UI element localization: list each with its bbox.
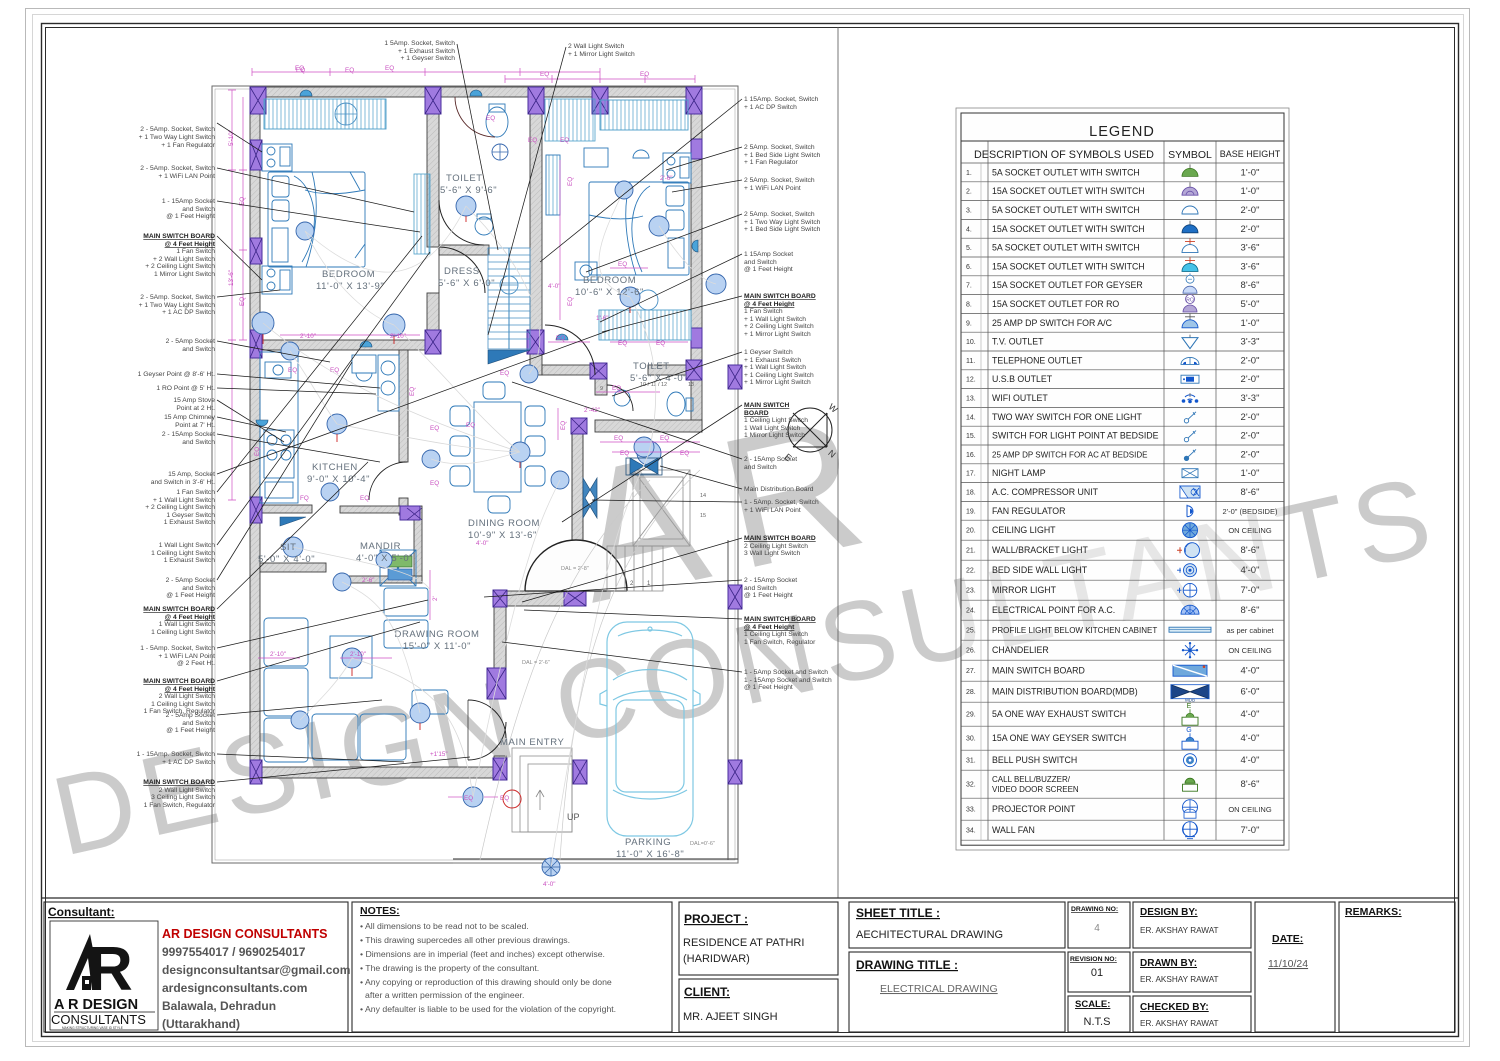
svg-text:1 Ceiling Light Switch: 1 Ceiling Light Switch	[744, 631, 808, 638]
svg-text:+ 1 Mirror Light Switch: + 1 Mirror Light Switch	[568, 51, 635, 58]
svg-text:24.: 24.	[966, 608, 976, 615]
svg-text:2 - 5Amp Socket: 2 - 5Amp Socket	[166, 577, 216, 584]
svg-text:BASE HEIGHT: BASE HEIGHT	[1220, 149, 1281, 159]
svg-text:Main Distribution Board: Main Distribution Board	[744, 486, 814, 493]
svg-text:25 AMP DP SWITCH FOR A/C: 25 AMP DP SWITCH FOR A/C	[992, 318, 1113, 328]
svg-text:+ 1 WiFi LAN Point: + 1 WiFi LAN Point	[744, 185, 801, 192]
svg-text:SCALE:: SCALE:	[1075, 999, 1110, 1010]
svg-text:3'-6": 3'-6"	[1241, 243, 1260, 254]
svg-text:@ 1 Feet Height: @ 1 Feet Height	[744, 266, 793, 273]
svg-text:CALL BELL/BUZZER/: CALL BELL/BUZZER/	[992, 775, 1071, 784]
svg-text:4'-0": 4'-0"	[1241, 709, 1260, 720]
svg-text:EQ: EQ	[486, 115, 495, 122]
svg-text:+ 1 WiFi LAN Point: + 1 WiFi LAN Point	[744, 507, 801, 514]
svg-text:4'-0": 4'-0"	[543, 881, 556, 888]
svg-text:3 Ceiling Light Switch: 3 Ceiling Light Switch	[151, 794, 215, 801]
svg-text:2 Ceiling Light Switch: 2 Ceiling Light Switch	[744, 543, 808, 550]
svg-text:and Switch: and Switch	[182, 206, 215, 213]
svg-text:WIFI OUTLET: WIFI OUTLET	[992, 393, 1048, 403]
svg-text:EQ: EQ	[464, 795, 473, 802]
svg-text:32.: 32.	[966, 782, 976, 789]
svg-text:CHANDELIER: CHANDELIER	[992, 645, 1049, 655]
svg-text:and Switch: and Switch	[182, 585, 215, 592]
svg-text:EQ: EQ	[680, 450, 689, 457]
svg-text:1 Geyser Switch: 1 Geyser Switch	[166, 512, 215, 519]
svg-text:15A SOCKET OUTLET WITH SWITCH: 15A SOCKET OUTLET WITH SWITCH	[992, 186, 1145, 196]
svg-text:+ 1 Fan Regulator: + 1 Fan Regulator	[744, 159, 798, 166]
svg-text:EQ: EQ	[620, 450, 629, 457]
svg-text:15A SOCKET OUTLET FOR GEYSER: 15A SOCKET OUTLET FOR GEYSER	[992, 280, 1143, 290]
svg-text:1 Ceiling Light Switch: 1 Ceiling Light Switch	[744, 417, 808, 424]
svg-text:TOILET: TOILET	[446, 173, 483, 184]
svg-text:EQ: EQ	[528, 137, 537, 144]
svg-text:+1'15": +1'15"	[430, 751, 448, 758]
svg-text:DESIGN BY:: DESIGN BY:	[1140, 907, 1198, 918]
svg-text:15A ONE WAY GEYSER SWITCH: 15A ONE WAY GEYSER SWITCH	[992, 733, 1126, 743]
svg-text:2 - 5Amp. Socket, Switch: 2 - 5Amp. Socket, Switch	[140, 165, 215, 172]
svg-text:and Switch in 3'-6' Ht.: and Switch in 3'-6' Ht.	[151, 479, 215, 486]
svg-text:EQ: EQ	[567, 177, 574, 186]
svg-text:12.: 12.	[966, 377, 976, 384]
svg-text:DINING ROOM: DINING ROOM	[468, 518, 540, 529]
svg-text:1 15Amp. Socket, Switch: 1 15Amp. Socket, Switch	[744, 96, 819, 103]
svg-text:2 - 5Amp Socket: 2 - 5Amp Socket	[166, 712, 216, 719]
svg-text:MAIN DISTRIBUTION BOARD(MDB): MAIN DISTRIBUTION BOARD(MDB)	[992, 687, 1138, 697]
svg-text:@ 1 Feet Height: @ 1 Feet Height	[744, 592, 793, 599]
svg-text:1'-0": 1'-0"	[1241, 167, 1260, 178]
svg-text:3'-6": 3'-6"	[1241, 261, 1260, 272]
svg-text:11'-0" X 16'-8": 11'-0" X 16'-8"	[616, 849, 684, 860]
svg-text:1 Wall Light Switch: 1 Wall Light Switch	[159, 621, 216, 628]
svg-text:MAIN SWITCH BOARD: MAIN SWITCH BOARD	[143, 606, 215, 613]
svg-text:and Switch: and Switch	[182, 439, 215, 446]
svg-text:MAIN SWITCH BOARD: MAIN SWITCH BOARD	[143, 779, 215, 786]
svg-text:1 Mirror Light Switch: 1 Mirror Light Switch	[154, 271, 215, 278]
svg-text:5A SOCKET OUTLET WITH SWITCH: 5A SOCKET OUTLET WITH SWITCH	[992, 243, 1140, 253]
svg-text:A.C. COMPRESSOR UNIT: A.C. COMPRESSOR UNIT	[992, 487, 1099, 497]
svg-text:5A ONE WAY EXHAUST SWITCH: 5A ONE WAY EXHAUST SWITCH	[992, 709, 1126, 719]
svg-text:and Switch: and Switch	[182, 720, 215, 727]
svg-text:2': 2'	[432, 596, 439, 601]
svg-text:1 5Amp. Socket, Switch: 1 5Amp. Socket, Switch	[384, 40, 455, 47]
svg-text:DAL = 2'-8": DAL = 2'-8"	[561, 566, 589, 572]
svg-text:1 Wall Light Switch: 1 Wall Light Switch	[159, 542, 216, 549]
svg-text:CEILING LIGHT: CEILING LIGHT	[992, 525, 1056, 535]
svg-text:1 RO Point @ 5' Ht.: 1 RO Point @ 5' Ht.	[156, 385, 215, 392]
svg-text:EQ: EQ	[239, 297, 246, 306]
svg-text:2 5Amp. Socket, Switch: 2 5Amp. Socket, Switch	[744, 144, 815, 151]
svg-text:9.: 9.	[966, 320, 972, 327]
svg-text:6'-0": 6'-0"	[1241, 687, 1260, 698]
svg-text:EQ: EQ	[660, 435, 669, 442]
svg-text:NOTES:: NOTES:	[360, 905, 400, 917]
svg-text:EQ: EQ	[560, 137, 569, 144]
svg-text:2 Wall Light Switch: 2 Wall Light Switch	[159, 693, 216, 700]
svg-text:2'-0": 2'-0"	[1241, 449, 1260, 460]
svg-text:EQ: EQ	[640, 71, 649, 78]
svg-text:1 Fan Switch: 1 Fan Switch	[176, 489, 215, 496]
svg-text:26.: 26.	[966, 648, 976, 655]
svg-text:4'-0": 4'-0"	[476, 540, 489, 547]
svg-text:MANDIR: MANDIR	[360, 541, 401, 552]
svg-text:LEGEND: LEGEND	[1089, 124, 1155, 140]
svg-text:17.: 17.	[966, 471, 976, 478]
svg-text:+ 1 AC DP Switch: + 1 AC DP Switch	[162, 759, 215, 766]
svg-text:14: 14	[700, 493, 706, 499]
svg-text:SHEET TITLE :: SHEET TITLE :	[856, 906, 940, 920]
svg-text:MAIN SWITCH BOARD: MAIN SWITCH BOARD	[143, 678, 215, 685]
svg-text:8'-6": 8'-6"	[1241, 779, 1260, 790]
svg-text:EQ: EQ	[618, 261, 627, 268]
svg-text:WALL FAN: WALL FAN	[992, 825, 1035, 835]
svg-text:30.: 30.	[966, 736, 976, 743]
svg-text:+ 1 Fan Regulator: + 1 Fan Regulator	[161, 142, 215, 149]
svg-text:ER. AKSHAY RAWAT: ER. AKSHAY RAWAT	[1140, 1019, 1219, 1028]
svg-text:01: 01	[1091, 967, 1103, 979]
svg-text:2 5Amp. Socket, Switch: 2 5Amp. Socket, Switch	[744, 211, 815, 218]
svg-text:Point at 2 Ht.: Point at 2 Ht.	[176, 405, 215, 412]
svg-text:10.: 10.	[966, 339, 976, 346]
svg-text:13: 13	[688, 382, 694, 388]
svg-text:2 - 5Amp Socket: 2 - 5Amp Socket	[166, 338, 216, 345]
svg-text:AECHITECTURAL DRAWING: AECHITECTURAL DRAWING	[856, 929, 1003, 941]
svg-text:@ 4 Feet Height: @ 4 Feet Height	[165, 686, 216, 693]
svg-text:and Switch: and Switch	[744, 585, 777, 592]
svg-text:• Any copying or reproduction: • Any copying or reproduction of this dr…	[360, 977, 612, 987]
svg-text:4'-0": 4'-0"	[1241, 755, 1260, 766]
svg-text:ELECTRICAL DRAWING: ELECTRICAL DRAWING	[880, 983, 998, 995]
svg-text:1 Ceiling Light Switch: 1 Ceiling Light Switch	[151, 550, 215, 557]
svg-text:@ 1 Feet Height: @ 1 Feet Height	[744, 684, 793, 691]
svg-text:BOARD: BOARD	[744, 410, 769, 417]
svg-text:25.: 25.	[966, 628, 976, 635]
svg-text:15A SOCKET OUTLET FOR RO: 15A SOCKET OUTLET FOR RO	[992, 299, 1119, 309]
svg-text:1 Ceiling Light Switch: 1 Ceiling Light Switch	[151, 629, 215, 636]
svg-text:1'-0": 1'-0"	[1241, 468, 1260, 479]
svg-text:ER. AKSHAY RAWAT: ER. AKSHAY RAWAT	[1140, 975, 1219, 984]
svg-text:@ 1 Feet Height: @ 1 Feet Height	[166, 213, 215, 220]
svg-text:1 Fan Switch: 1 Fan Switch	[744, 308, 783, 315]
svg-text:3'-3": 3'-3"	[1241, 393, 1260, 404]
svg-text:15: 15	[700, 513, 706, 519]
svg-text:2 Wall Light Switch: 2 Wall Light Switch	[568, 43, 625, 50]
svg-text:+ 1 Mirror Light Switch: + 1 Mirror Light Switch	[744, 379, 811, 386]
svg-text:PROJECTOR POINT: PROJECTOR POINT	[992, 804, 1076, 814]
svg-text:DATE:: DATE:	[1272, 933, 1303, 945]
svg-text:15'-0" X 11'-0": 15'-0" X 11'-0"	[403, 641, 471, 652]
svg-text:and Switch: and Switch	[744, 464, 777, 471]
svg-text:9997554017 / 9690254017: 9997554017 / 9690254017	[162, 945, 306, 959]
svg-text:1 - 15Amp Socket: 1 - 15Amp Socket	[162, 198, 215, 205]
svg-text:• All dimensions to be read no: • All dimensions to be read not to be sc…	[360, 921, 529, 931]
svg-text:BELL PUSH SWITCH: BELL PUSH SWITCH	[992, 755, 1077, 765]
svg-text:8.: 8.	[966, 302, 972, 309]
svg-text:13'-6": 13'-6"	[228, 270, 235, 286]
svg-text:ON CEILING: ON CEILING	[1228, 526, 1272, 535]
svg-text:@ 4 Feet Height: @ 4 Feet Height	[744, 301, 795, 308]
svg-text:EQ: EQ	[656, 340, 665, 347]
svg-text:MAIN SWITCH BOARD: MAIN SWITCH BOARD	[992, 666, 1085, 676]
svg-text:REMARKS:: REMARKS:	[1345, 906, 1402, 918]
svg-text:ON CEILING: ON CEILING	[1228, 646, 1272, 655]
svg-text:MAIN ENTRY: MAIN ENTRY	[500, 737, 564, 748]
svg-text:5A SOCKET OUTLET WITH SWITCH: 5A SOCKET OUTLET WITH SWITCH	[992, 167, 1140, 177]
svg-text:1.: 1.	[966, 170, 972, 177]
svg-text:EQ: EQ	[556, 335, 565, 342]
svg-text:7'-0": 7'-0"	[1241, 585, 1260, 596]
svg-text:+ 1 Bed Side Light Switch: + 1 Bed Side Light Switch	[744, 152, 821, 159]
svg-text:8'-6": 8'-6"	[1241, 487, 1260, 498]
svg-text:• Dimensions are in imperial (: • Dimensions are in imperial (feet and i…	[360, 949, 605, 959]
svg-text:RESIDENCE AT PATHRI: RESIDENCE AT PATHRI	[683, 937, 804, 949]
svg-text:22.: 22.	[966, 568, 976, 575]
svg-text:28.: 28.	[966, 689, 976, 696]
svg-text:BED SIDE WALL LIGHT: BED SIDE WALL LIGHT	[992, 565, 1088, 575]
svg-text:3 Wall Light Switch: 3 Wall Light Switch	[744, 550, 801, 557]
svg-text:EQ: EQ	[614, 435, 623, 442]
svg-text:@ 4 Feet Height: @ 4 Feet Height	[165, 241, 216, 248]
svg-text:6.: 6.	[966, 264, 972, 271]
svg-text:(HARIDWAR): (HARIDWAR)	[683, 953, 750, 965]
svg-text:DESCRIPTION OF SYMBOLS USED: DESCRIPTION OF SYMBOLS USED	[974, 149, 1154, 161]
svg-text:Consultant:: Consultant:	[48, 905, 115, 919]
svg-text:+ 1 Wall Light Switch: + 1 Wall Light Switch	[744, 364, 806, 371]
svg-text:11.: 11.	[966, 358, 975, 365]
svg-text:@ 1 Feet Height: @ 1 Feet Height	[166, 592, 215, 599]
svg-text:3'-3": 3'-3"	[1241, 337, 1260, 348]
svg-text:@ 4 Feet Height: @ 4 Feet Height	[165, 614, 216, 621]
svg-text:18.: 18.	[966, 490, 976, 497]
svg-text:+ 1 Two Way Light Switch: + 1 Two Way Light Switch	[744, 219, 821, 226]
svg-text:• This drawing supercedes all: • This drawing supercedes all other prev…	[360, 935, 570, 945]
svg-text:4'-0": 4'-0"	[548, 283, 561, 290]
svg-text:7'-0": 7'-0"	[1241, 825, 1260, 836]
svg-text:EQ: EQ	[345, 67, 354, 74]
svg-text:31.: 31.	[966, 758, 976, 765]
svg-text:EQ: EQ	[254, 447, 261, 456]
svg-text:FQ: FQ	[300, 495, 309, 502]
svg-text:DRAWN BY:: DRAWN BY:	[1140, 958, 1197, 969]
svg-text:1 - 5Amp. Socket, Switch: 1 - 5Amp. Socket, Switch	[140, 645, 215, 652]
svg-text:1 Wall Light Switch: 1 Wall Light Switch	[744, 425, 801, 432]
svg-text:1 Exhaust Switch: 1 Exhaust Switch	[164, 519, 216, 526]
svg-text:EQ: EQ	[466, 422, 475, 429]
svg-text:BEDROOM: BEDROOM	[322, 269, 375, 280]
svg-text:DAL = 2'-6": DAL = 2'-6"	[522, 660, 550, 666]
svg-text:+ 1 Two Way Light Switch: + 1 Two Way Light Switch	[139, 302, 216, 309]
svg-text:1 - 5Amp Socket and Switch: 1 - 5Amp Socket and Switch	[744, 669, 828, 676]
svg-text:16.: 16.	[966, 452, 976, 459]
svg-text:15 Amp Stove: 15 Amp Stove	[173, 397, 215, 404]
svg-text:13.: 13.	[966, 396, 976, 403]
svg-text:+ 1 Two Way Light Switch: + 1 Two Way Light Switch	[139, 134, 216, 141]
svg-text:2'-0": 2'-0"	[1241, 412, 1260, 423]
svg-text:15.: 15.	[966, 433, 976, 440]
svg-text:1 Fan Switch, Regulator: 1 Fan Switch, Regulator	[144, 802, 216, 809]
svg-text:25 AMP DP SWITCH FOR AC AT BED: 25 AMP DP SWITCH FOR AC AT BEDSIDE	[992, 450, 1147, 459]
svg-text:+ 1 WiFi LAN Point: + 1 WiFi LAN Point	[158, 173, 215, 180]
svg-text:1 - 15Amp. Socket, Switch: 1 - 15Amp. Socket, Switch	[137, 751, 216, 758]
svg-text:4'-0": 4'-0"	[1241, 565, 1260, 576]
svg-text:34.: 34.	[966, 828, 976, 835]
svg-text:1 Fan Switch: 1 Fan Switch	[176, 248, 215, 255]
svg-text:+ 1 Ceiling Light Switch: + 1 Ceiling Light Switch	[744, 372, 814, 379]
svg-text:15A SOCKET OUTLET WITH SWITCH: 15A SOCKET OUTLET WITH SWITCH	[992, 261, 1145, 271]
svg-text:ON CEILING: ON CEILING	[1228, 805, 1272, 814]
svg-text:+ 1 Bed Side Light Switch: + 1 Bed Side Light Switch	[744, 226, 821, 233]
svg-text:15A SOCKET OUTLET WITH SWITCH: 15A SOCKET OUTLET WITH SWITCH	[992, 224, 1145, 234]
svg-text:EQ: EQ	[296, 67, 305, 74]
svg-text:2'-10": 2'-10"	[270, 651, 286, 658]
svg-text:+ 1 Exhaust Switch: + 1 Exhaust Switch	[398, 48, 455, 55]
svg-text:1 - 15Amp Socket and Switch: 1 - 15Amp Socket and Switch	[744, 677, 832, 684]
svg-text:EQ: EQ	[618, 340, 627, 347]
svg-text:DRAWING TITLE :: DRAWING TITLE :	[856, 958, 958, 972]
svg-text:+ 1 Exhaust Switch: + 1 Exhaust Switch	[744, 357, 801, 364]
svg-text:TELEPHONE OUTLET: TELEPHONE OUTLET	[992, 355, 1083, 365]
svg-text:5'-0": 5'-0"	[1241, 299, 1260, 310]
svg-text:2 - 5Amp. Socket, Switch: 2 - 5Amp. Socket, Switch	[140, 126, 215, 133]
svg-text:EQ: EQ	[288, 367, 297, 374]
svg-text:2'-0": 2'-0"	[1241, 374, 1260, 385]
svg-text:MAIN SWITCH: MAIN SWITCH	[744, 402, 789, 409]
svg-text:29.: 29.	[966, 712, 976, 719]
svg-text:1 Geyser Switch: 1 Geyser Switch	[744, 349, 793, 356]
svg-text:after a written permission of: after a written permission of the engine…	[365, 990, 524, 1000]
svg-text:@ 2 Feet Ht.: @ 2 Feet Ht.	[177, 660, 215, 667]
svg-text:DRESS: DRESS	[444, 266, 480, 277]
svg-text:• Any defaulter is liable to b: • Any defaulter is liable to be used for…	[360, 1004, 616, 1014]
svg-text:10'-6" X 12'-6": 10'-6" X 12'-6"	[575, 287, 644, 298]
svg-text:33.: 33.	[966, 807, 976, 814]
svg-text:4'-0": 4'-0"	[1241, 733, 1260, 744]
svg-text:1 Geyser Point @ 8'-6' Ht.: 1 Geyser Point @ 8'-6' Ht.	[138, 371, 216, 378]
svg-text:CHECKED BY:: CHECKED BY:	[1140, 1002, 1209, 1013]
svg-text:+ 2 Wall Light Switch: + 2 Wall Light Switch	[153, 256, 215, 263]
svg-text:9'-0" X 10'-4": 9'-0" X 10'-4"	[307, 474, 370, 485]
svg-text:T.V. OUTLET: T.V. OUTLET	[992, 337, 1044, 347]
svg-text:2 - 5Amp. Socket, Switch: 2 - 5Amp. Socket, Switch	[140, 294, 215, 301]
svg-text:2 5Amp. Socket, Switch: 2 5Amp. Socket, Switch	[744, 177, 815, 184]
svg-text:4'-0": 4'-0"	[1241, 666, 1260, 677]
svg-text:EQ: EQ	[560, 421, 567, 430]
svg-text:+ 2 Ceiling Light Switch: + 2 Ceiling Light Switch	[145, 504, 215, 511]
svg-text:EQ: EQ	[385, 65, 394, 72]
svg-text:20.: 20.	[966, 528, 976, 535]
svg-text:@ 4 Feet Height: @ 4 Feet Height	[744, 624, 795, 631]
svg-text:EQ: EQ	[430, 480, 439, 487]
svg-text:MR. AJEET SINGH: MR. AJEET SINGH	[683, 1011, 778, 1023]
svg-text:1 Fan Switch, Regulator: 1 Fan Switch, Regulator	[744, 639, 816, 646]
svg-text:+ 1 Wall Light Switch: + 1 Wall Light Switch	[153, 497, 215, 504]
svg-text:5A SOCKET OUTLET WITH SWITCH: 5A SOCKET OUTLET WITH SWITCH	[992, 205, 1140, 215]
svg-text:KITCHEN: KITCHEN	[312, 462, 358, 473]
svg-text:1'-0": 1'-0"	[1241, 318, 1260, 329]
svg-text:4.: 4.	[966, 226, 972, 233]
svg-text:2.: 2.	[966, 189, 972, 196]
svg-text:+ 1 AC DP Switch: + 1 AC DP Switch	[744, 104, 797, 111]
svg-text:CLIENT:: CLIENT:	[684, 985, 730, 999]
svg-text:+ 1 WiFi LAN Point: + 1 WiFi LAN Point	[158, 653, 215, 660]
svg-text:(Uttarakhand): (Uttarakhand)	[162, 1017, 240, 1031]
svg-text:1 - 5Amp. Socket, Switch: 1 - 5Amp. Socket, Switch	[744, 499, 819, 506]
svg-text:EQ: EQ	[409, 387, 416, 396]
svg-text:TWO WAY SWITCH FOR ONE LIGHT: TWO WAY SWITCH FOR ONE LIGHT	[992, 412, 1142, 422]
svg-text:2'-10": 2'-10"	[350, 651, 366, 658]
svg-text:Point at 7' Ht.: Point at 7' Ht.	[175, 422, 215, 429]
svg-text:Balawala, Dehradun: Balawala, Dehradun	[162, 999, 276, 1013]
svg-text:14.: 14.	[966, 414, 976, 421]
svg-text:SWITCH FOR LIGHT POINT AT BEDS: SWITCH FOR LIGHT POINT AT BEDSIDE	[992, 431, 1159, 441]
svg-text:REVISION NO:: REVISION NO:	[1070, 956, 1117, 963]
svg-text:BEDROOM: BEDROOM	[583, 275, 636, 286]
svg-text:5.: 5.	[966, 245, 972, 252]
svg-text:DRAWING ROOM: DRAWING ROOM	[395, 629, 480, 640]
svg-text:2 - 15Amp Socket: 2 - 15Amp Socket	[162, 431, 215, 438]
svg-text:ELECTRICAL POINT FOR A.C.: ELECTRICAL POINT FOR A.C.	[992, 605, 1115, 615]
svg-text:EQ: EQ	[360, 495, 369, 502]
svg-text:as per cabinet: as per cabinet	[1226, 626, 1274, 635]
svg-text:5'-6" X 6'-0": 5'-6" X 6'-0"	[438, 278, 495, 289]
svg-text:11'-0" X 13'-9": 11'-0" X 13'-9"	[316, 281, 384, 292]
svg-text:27.: 27.	[966, 668, 976, 675]
svg-text:PARKING: PARKING	[625, 837, 671, 848]
svg-text:2'-0" (BEDSIDE): 2'-0" (BEDSIDE)	[1223, 507, 1278, 516]
svg-text:MAIN SWITCH BOARD: MAIN SWITCH BOARD	[744, 535, 816, 542]
svg-text:PROJECT :: PROJECT :	[684, 912, 748, 926]
svg-text:ER. AKSHAY RAWAT: ER. AKSHAY RAWAT	[1140, 926, 1219, 935]
svg-text:EQ: EQ	[612, 385, 621, 392]
svg-text:5'-6" X 9'-6": 5'-6" X 9'-6"	[440, 185, 497, 196]
svg-text:1 15Amp Socket: 1 15Amp Socket	[744, 251, 793, 258]
svg-text:VIDEO DOOR SCREEN: VIDEO DOOR SCREEN	[992, 785, 1079, 794]
svg-text:DRAWING NO:: DRAWING NO:	[1071, 906, 1118, 913]
svg-text:EQ: EQ	[430, 425, 439, 432]
svg-text:• The drawing is the property: • The drawing is the property of the con…	[360, 963, 539, 973]
svg-text:8'-6": 8'-6"	[1241, 280, 1260, 291]
svg-text:5'-0" X 4'-0": 5'-0" X 4'-0"	[258, 554, 315, 565]
svg-text:2'-0": 2'-0"	[1241, 205, 1260, 216]
svg-text:2'-0": 2'-0"	[1241, 431, 1260, 442]
svg-text:2 Wall Light Switch: 2 Wall Light Switch	[159, 787, 216, 794]
svg-text:TOILET: TOILET	[633, 361, 670, 372]
svg-text:2'-6": 2'-6"	[660, 175, 673, 182]
svg-text:23.: 23.	[966, 588, 976, 595]
svg-text:11/10/24: 11/10/24	[1268, 958, 1308, 970]
svg-text:MIRROR LIGHT: MIRROR LIGHT	[992, 585, 1057, 595]
svg-text:+ 1 Geyser Switch: + 1 Geyser Switch	[401, 55, 456, 62]
svg-text:2 - 15Amp Socket: 2 - 15Amp Socket	[744, 456, 797, 463]
svg-text:EQ: EQ	[540, 71, 549, 78]
svg-text:DAL=0'-6": DAL=0'-6"	[690, 841, 715, 847]
svg-text:8'-6": 8'-6"	[1241, 605, 1260, 616]
svg-text:MAIN SWITCH BOARD: MAIN SWITCH BOARD	[143, 233, 215, 240]
svg-text:MAIN SWITCH BOARD: MAIN SWITCH BOARD	[744, 293, 816, 300]
svg-text:1 Exhaust Switch: 1 Exhaust Switch	[164, 557, 216, 564]
svg-text:NIGHT LAMP: NIGHT LAMP	[992, 468, 1046, 478]
svg-text:21.: 21.	[966, 548, 976, 555]
svg-text:1 Mirror Light Switch: 1 Mirror Light Switch	[744, 432, 805, 439]
svg-text:@ 1 Feet Height: @ 1 Feet Height	[166, 727, 215, 734]
svg-text:+ 2 Ceiling Light Switch: + 2 Ceiling Light Switch	[744, 323, 814, 330]
svg-text:15 Amp, Socket: 15 Amp, Socket	[168, 471, 215, 478]
svg-text:2 - 15Amp Socket: 2 - 15Amp Socket	[744, 577, 797, 584]
svg-text:A R DESIGN: A R DESIGN	[54, 997, 138, 1013]
svg-text:4: 4	[1094, 923, 1100, 934]
svg-text:2'-0": 2'-0"	[1241, 355, 1260, 366]
svg-text:SYMBOL: SYMBOL	[1168, 149, 1212, 161]
svg-text:CONSULTANTS: CONSULTANTS	[51, 1012, 146, 1027]
